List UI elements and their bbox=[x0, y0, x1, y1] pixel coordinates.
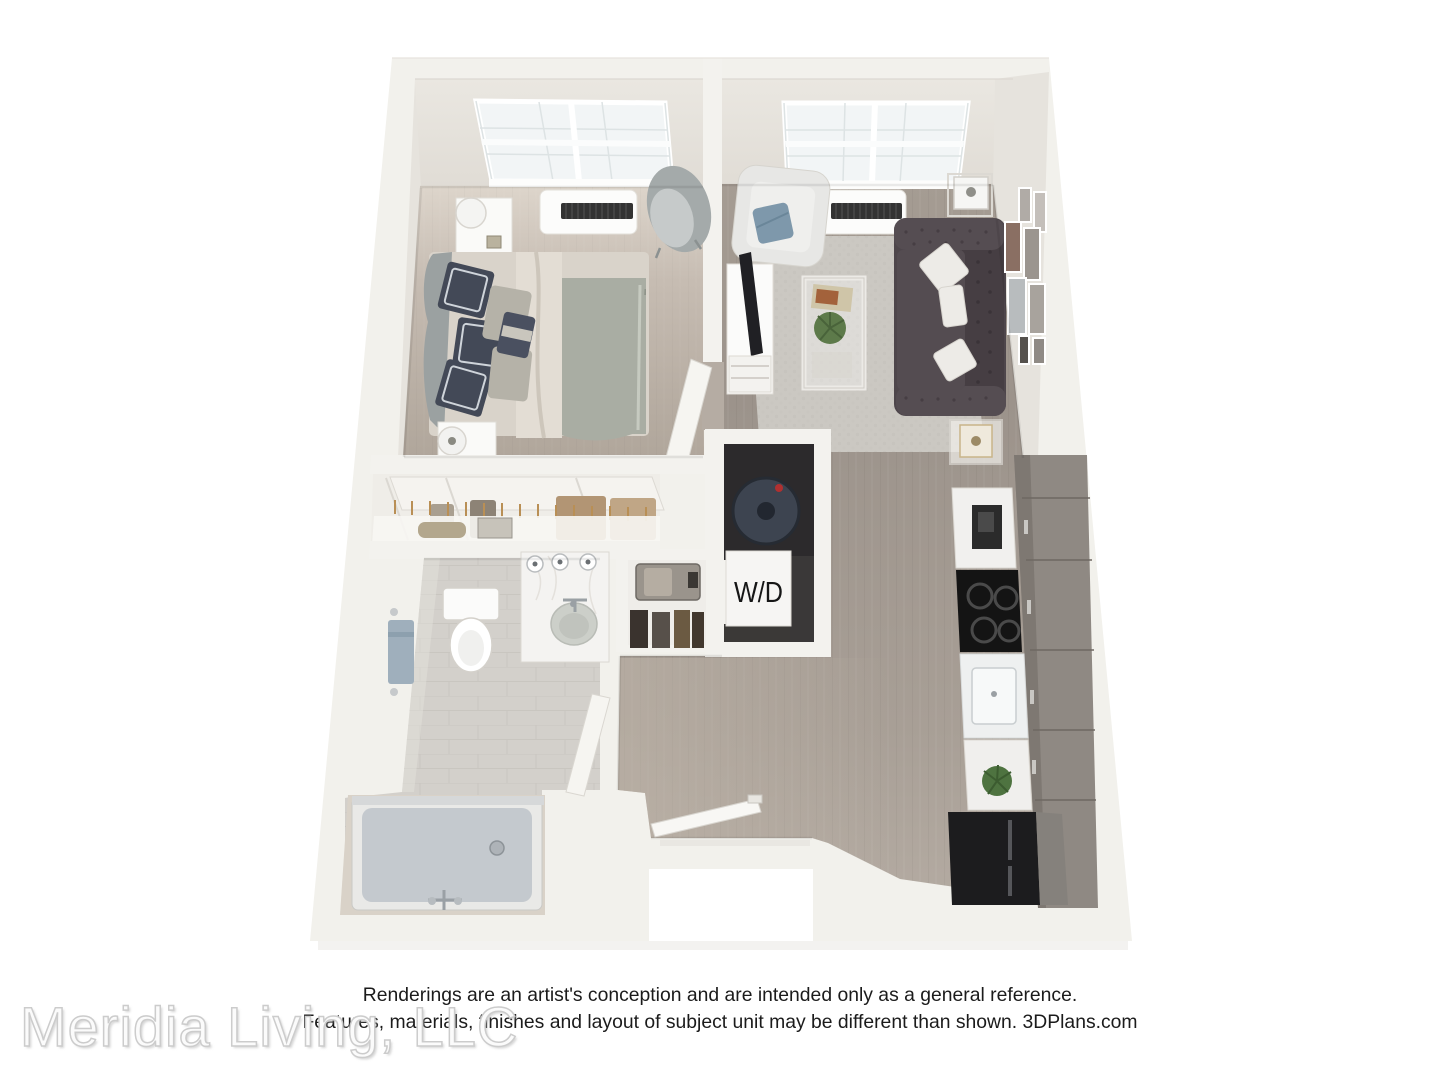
svg-text:W/D: W/D bbox=[734, 577, 783, 609]
